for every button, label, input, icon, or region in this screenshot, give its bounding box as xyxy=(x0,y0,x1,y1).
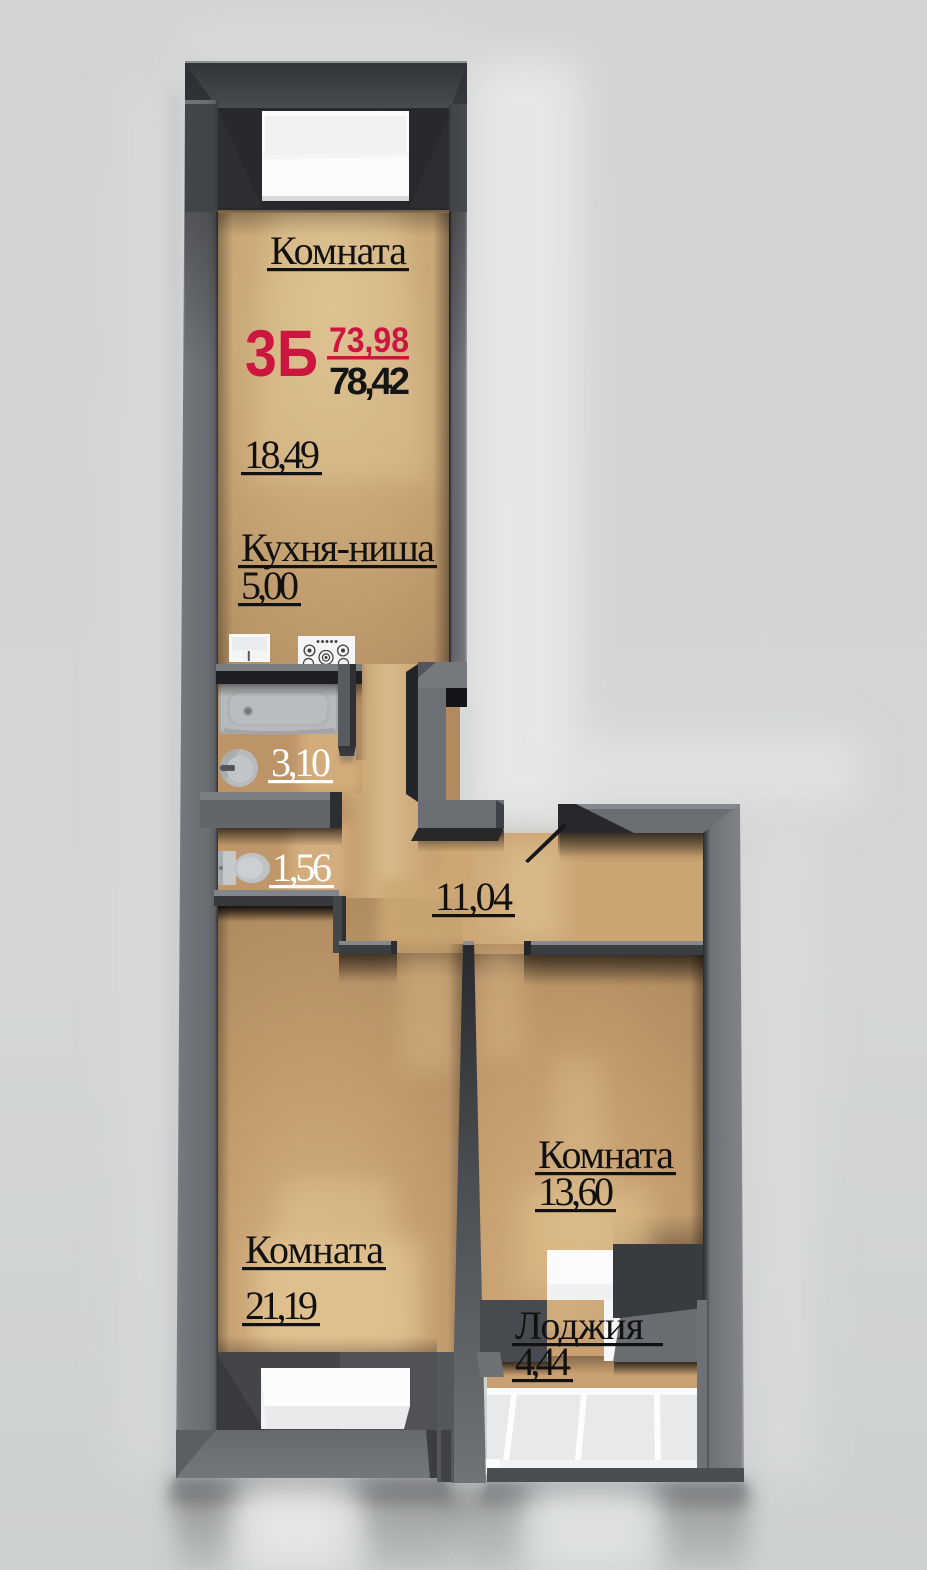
svg-text:18,49: 18,49 xyxy=(244,432,320,477)
svg-text:5,00: 5,00 xyxy=(241,563,299,608)
svg-text:Комната: Комната xyxy=(245,1227,384,1272)
svg-text:1,56: 1,56 xyxy=(272,845,332,890)
svg-text:Комната: Комната xyxy=(270,228,407,273)
svg-text:13,60: 13,60 xyxy=(538,1169,614,1214)
svg-text:3,10: 3,10 xyxy=(271,740,331,785)
svg-text:3Б: 3Б xyxy=(245,316,318,390)
svg-text:11,04: 11,04 xyxy=(435,874,513,919)
svg-text:21,19: 21,19 xyxy=(245,1283,318,1328)
svg-text:73,98: 73,98 xyxy=(329,321,409,360)
svg-text:78,42: 78,42 xyxy=(329,361,410,403)
svg-text:4,44: 4,44 xyxy=(515,1339,571,1384)
